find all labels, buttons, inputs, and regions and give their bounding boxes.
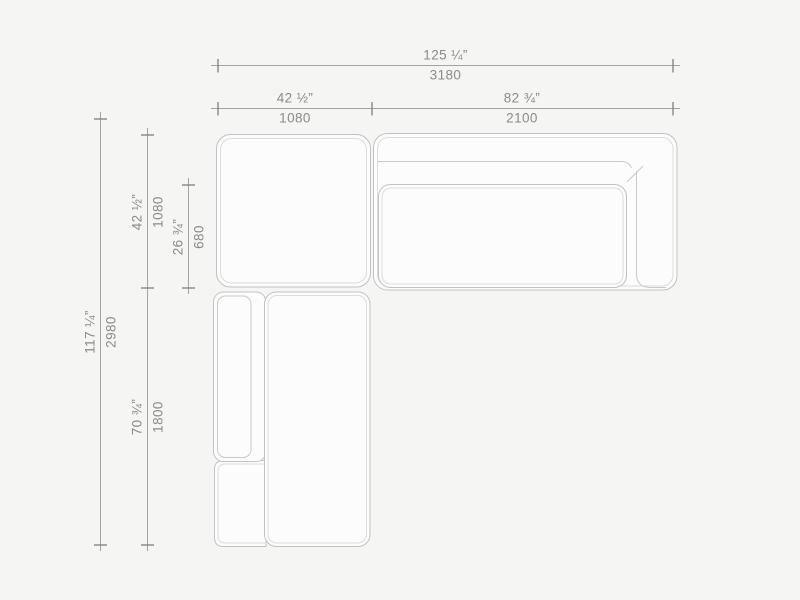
right-section-width-inches-label: 82 ¾” — [504, 91, 541, 105]
sofa-seat-cushion — [379, 185, 627, 288]
top-section-depth-mm-label: 1080 — [151, 196, 165, 228]
chaise-length-mm-label: 1800 — [151, 401, 165, 433]
left-section-width-mm-label: 1080 — [279, 111, 311, 125]
seat-depth-mm-label: 680 — [192, 225, 206, 249]
overall-width-inches-label: 125 ¼” — [423, 48, 467, 62]
overall-width-mm-label: 3180 — [430, 68, 462, 82]
dim-depth-segments — [141, 128, 154, 551]
right-section-width-mm-label: 2100 — [506, 111, 538, 125]
drawing-canvas — [0, 0, 800, 600]
sofa-module — [374, 134, 678, 291]
left-section-width-inches-label: 42 ½” — [277, 91, 314, 105]
chaise-base-extension — [215, 461, 267, 547]
chaise-length-inches-label: 70 ¾” — [130, 398, 144, 435]
ottoman-module — [217, 135, 371, 288]
chaise-module — [214, 292, 371, 547]
ottoman-outline — [217, 135, 371, 288]
top-section-depth-inches-label: 42 ½” — [130, 193, 144, 230]
overall-depth-mm-label: 2980 — [104, 316, 118, 348]
seat-depth-inches-label: 26 ¾” — [171, 218, 185, 255]
chaise-seat-outline — [265, 292, 371, 547]
chaise-armrest-cushion — [218, 296, 252, 458]
sofa-dimension-drawing: 125 ¼” 3180 42 ½” 1080 82 ¾” 2100 117 ¼”… — [0, 0, 800, 600]
overall-depth-inches-label: 117 ¼” — [83, 310, 97, 353]
